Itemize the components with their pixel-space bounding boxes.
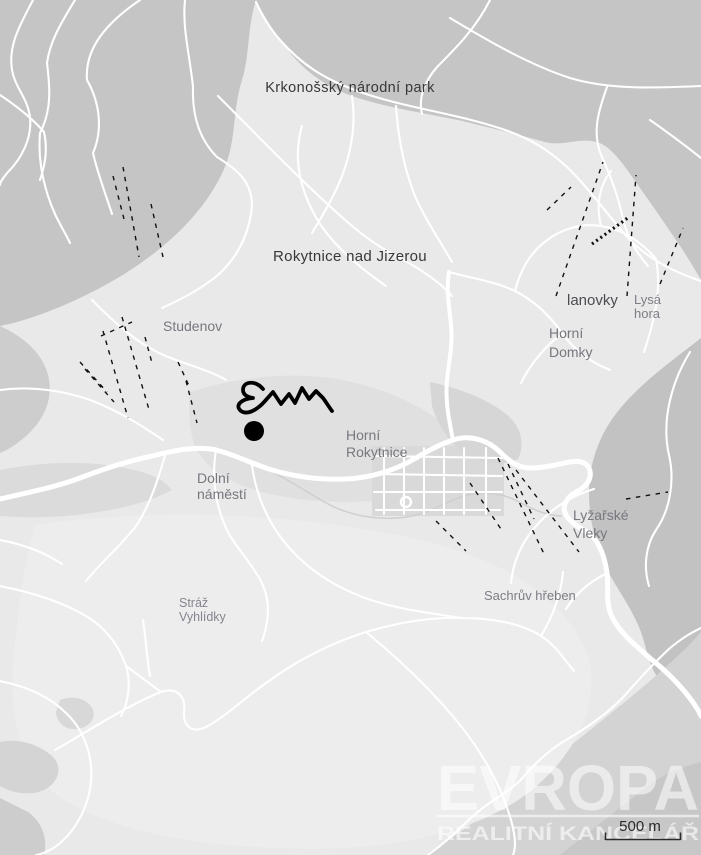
label-horni-domky-1: Horní bbox=[549, 325, 583, 341]
label-lysa-hora-1: Lysá bbox=[634, 292, 662, 307]
label-krkonossky-narodni-park: Krkonošský národní park bbox=[265, 80, 435, 96]
label-dolni-namesti-2: náměstí bbox=[197, 486, 247, 502]
label-horni-rokytnice-2: Rokytnice bbox=[346, 444, 408, 460]
label-straz-vyhlidky-1: Stráž bbox=[179, 596, 208, 610]
scale-bar-label: 500 m bbox=[619, 818, 661, 835]
label-rokytnice-nad-jizerou: Rokytnice nad Jizerou bbox=[273, 248, 427, 265]
map-canvas[interactable]: Krkonošský národní park Rokytnice nad Ji… bbox=[0, 0, 701, 855]
label-horni-rokytnice-1: Horní bbox=[346, 427, 380, 443]
label-sachruv-hreben: Sachrův hřeben bbox=[484, 588, 576, 603]
watermark-brand: EVROPA bbox=[437, 752, 699, 824]
label-straz-vyhlidky-2: Vyhlídky bbox=[179, 610, 227, 624]
map-viewport[interactable]: Krkonošský národní park Rokytnice nad Ji… bbox=[0, 0, 701, 855]
property-marker[interactable] bbox=[244, 421, 264, 441]
label-horni-domky-2: Domky bbox=[549, 344, 593, 360]
label-lanovky: lanovky bbox=[567, 292, 618, 309]
label-dolni-namesti-1: Dolní bbox=[197, 470, 230, 486]
label-lyzarske-vleky-1: Lyžařské bbox=[573, 507, 629, 523]
label-lyzarske-vleky-2: Vleky bbox=[573, 525, 607, 541]
label-lysa-hora-2: hora bbox=[634, 306, 661, 321]
label-studenov: Studenov bbox=[163, 318, 222, 334]
